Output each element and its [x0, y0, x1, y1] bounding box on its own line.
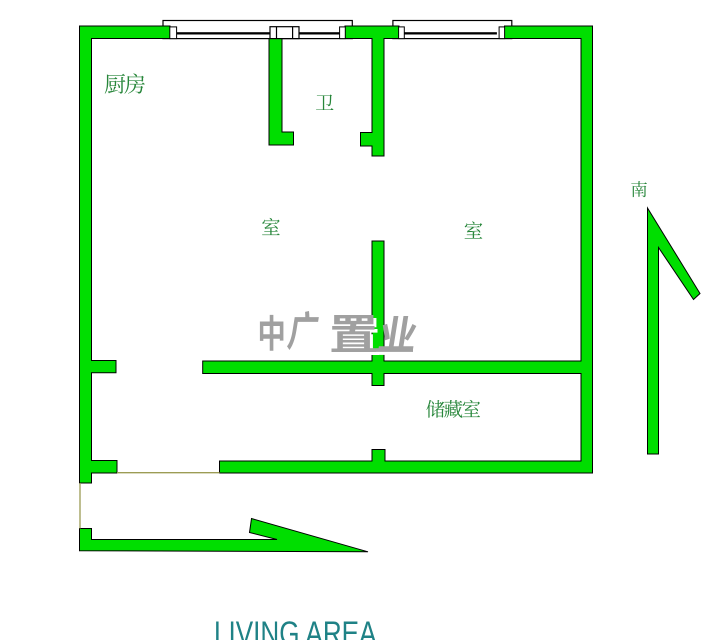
svg-text:LIVING AREA: LIVING AREA — [214, 615, 377, 640]
